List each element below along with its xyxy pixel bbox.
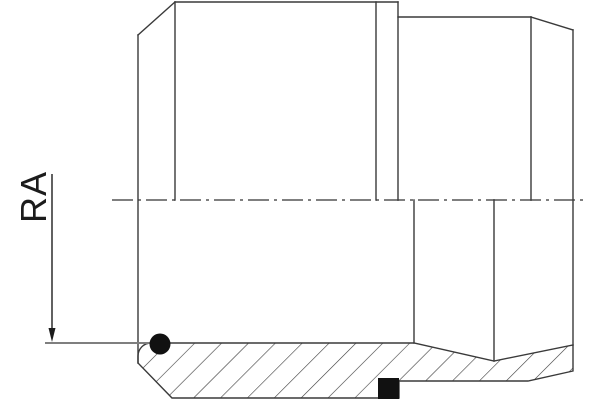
square-seal-ring xyxy=(378,378,399,399)
bore-step-lines xyxy=(414,200,494,361)
ra-dimension-label: RA xyxy=(13,171,54,223)
body-outline-upper xyxy=(138,2,573,363)
top-right-chamfer-edge xyxy=(531,17,573,30)
o-ring-seal xyxy=(150,334,171,355)
section-hatch-band xyxy=(138,343,573,398)
top-left-chamfer-edge xyxy=(138,2,175,35)
drawing-canvas: RA xyxy=(0,0,600,400)
fitting-technical-drawing: RA xyxy=(0,0,600,400)
ra-arrowhead-icon xyxy=(49,328,56,342)
